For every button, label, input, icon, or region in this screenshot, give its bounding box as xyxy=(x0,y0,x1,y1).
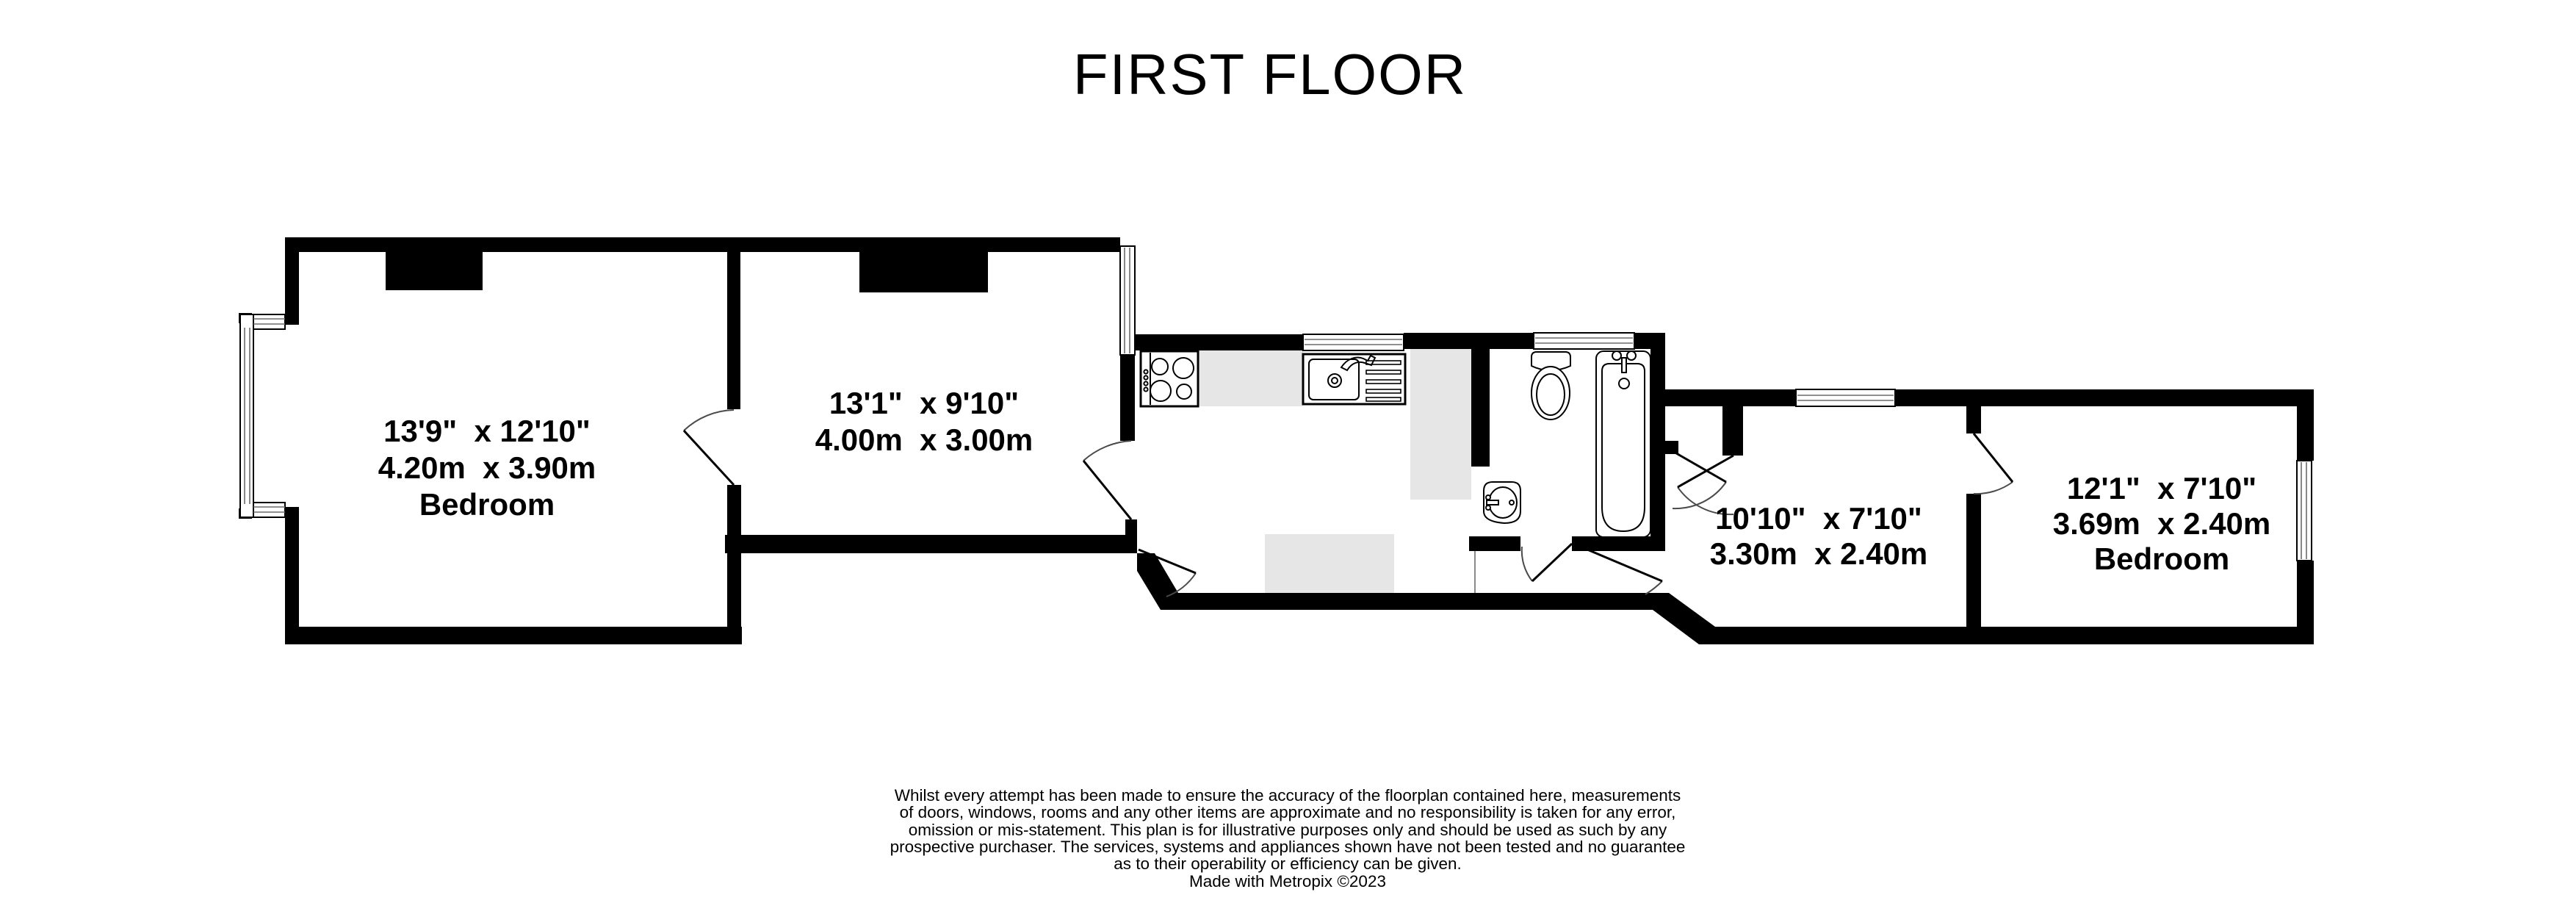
wall-bed2-right-lower xyxy=(2297,561,2314,644)
bedroom1-room-name: Bedroom xyxy=(419,487,555,522)
bay-masonry-bottom-inner xyxy=(285,507,299,519)
sink-drainer-icon xyxy=(1303,354,1405,404)
bedroom1-dims-imperial: 13'9" x 12'10" xyxy=(383,414,591,448)
disclaimer-line-1: Whilst every attempt has been made to en… xyxy=(895,786,1681,805)
bedroom2-dims-imperial: 12'1" x 7'10" xyxy=(2067,471,2256,505)
bedroom2-dims-metric: 3.69m x 2.40m xyxy=(2053,506,2271,541)
wall-bathroom-right xyxy=(1650,333,1665,551)
wall-bed2-right-upper xyxy=(2297,389,2314,461)
wall-room3-bed2-lower xyxy=(1966,494,1981,627)
door-room2 xyxy=(1083,441,1131,519)
wall-kitchen-top-right xyxy=(1404,333,1534,349)
room3-dims-imperial: 10'10" x 7'10" xyxy=(1715,501,1922,536)
door-bedroom1 xyxy=(684,410,734,485)
room3-window-icon xyxy=(1796,389,1895,406)
wall-room2-bottom xyxy=(725,535,1125,553)
disclaimer: Whilst every attempt has been made to en… xyxy=(890,786,1686,890)
wall-bed1-room2-lower xyxy=(727,485,741,644)
chimney-breast-bed1 xyxy=(386,252,483,290)
wall-right-section-bottom xyxy=(1699,627,2314,644)
wall-diagonal-kitchen-left xyxy=(1137,553,1178,610)
disclaimer-line-3: omission or mis-statement. This plan is … xyxy=(909,821,1667,839)
disclaimer-line-4: prospective purchaser. The services, sys… xyxy=(890,838,1686,856)
label-reception-room: 13'1" x 9'10" 4.00m x 3.00m xyxy=(815,386,1033,457)
label-bedroom-1: 13'9" x 12'10" 4.20m x 3.90m Bedroom xyxy=(378,414,596,522)
room2-dims-metric: 4.00m x 3.00m xyxy=(815,422,1033,457)
counter-island xyxy=(1265,534,1394,593)
wall-room2-right xyxy=(1120,355,1135,441)
wall-top-right-section-a xyxy=(1653,389,1796,406)
counter-tall-unit xyxy=(1410,349,1471,500)
wall-top-left-section xyxy=(285,237,1120,252)
wall-landing-stub xyxy=(1665,441,1678,454)
toilet-icon xyxy=(1531,352,1570,420)
disclaimer-line-6: Made with Metropix ©2023 xyxy=(1189,872,1386,890)
door-bedroom2 xyxy=(1974,433,2013,494)
wall-kitchen-bottom xyxy=(1168,593,1653,610)
wall-bed1-room2-upper xyxy=(727,252,740,409)
corner-window-icon xyxy=(1120,246,1135,355)
wall-room3-bed2-upper xyxy=(1966,406,1981,433)
bath-icon xyxy=(1596,351,1650,537)
label-room-3: 10'10" x 7'10" 3.30m x 2.40m xyxy=(1710,501,1928,571)
wall-room3-door-stub xyxy=(1722,406,1743,456)
disclaimer-line-2: of doors, windows, rooms and any other i… xyxy=(900,803,1676,821)
bedroom2-room-name: Bedroom xyxy=(2094,541,2229,576)
bay-masonry-top-inner xyxy=(285,313,299,325)
bay-window-icon xyxy=(240,314,285,517)
room2-dims-imperial: 13'1" x 9'10" xyxy=(829,386,1019,420)
bedroom2-window-icon xyxy=(2297,461,2312,561)
wall-bed1-bottom xyxy=(285,627,742,644)
floorplan-page: FIRST FLOOR xyxy=(0,0,2576,914)
door-landing xyxy=(1673,451,1726,508)
wall-kitchen-top-left xyxy=(1135,334,1303,350)
door-hall xyxy=(1573,544,1662,594)
plan-title: FIRST FLOOR xyxy=(1073,42,1467,107)
room3-dims-metric: 3.30m x 2.40m xyxy=(1710,536,1928,571)
counter-worktop xyxy=(1198,350,1303,406)
wall-bed1-left-upper xyxy=(285,252,299,323)
kitchen-window-icon xyxy=(1303,334,1404,350)
door-bathroom xyxy=(1522,544,1572,581)
wall-top-right-section-b xyxy=(1895,389,2314,406)
chimney-breast-room2 xyxy=(859,252,988,292)
hob-icon xyxy=(1141,351,1198,406)
wall-kitchen-bathroom-upper xyxy=(1471,349,1490,467)
basin-icon xyxy=(1484,482,1520,523)
label-bedroom-2: 12'1" x 7'10" 3.69m x 2.40m Bedroom xyxy=(2053,471,2271,576)
wall-bathroom-bottom-left xyxy=(1469,536,1520,551)
disclaimer-line-5: as to their operability or efficiency ca… xyxy=(1114,854,1462,873)
bathroom-window-icon xyxy=(1534,333,1634,349)
wall-bed1-left-lower xyxy=(285,508,299,627)
wall-room2-door-stub xyxy=(1125,519,1137,553)
bedroom1-dims-metric: 4.20m x 3.90m xyxy=(378,450,596,485)
floorplan-canvas: FIRST FLOOR xyxy=(0,0,2576,914)
